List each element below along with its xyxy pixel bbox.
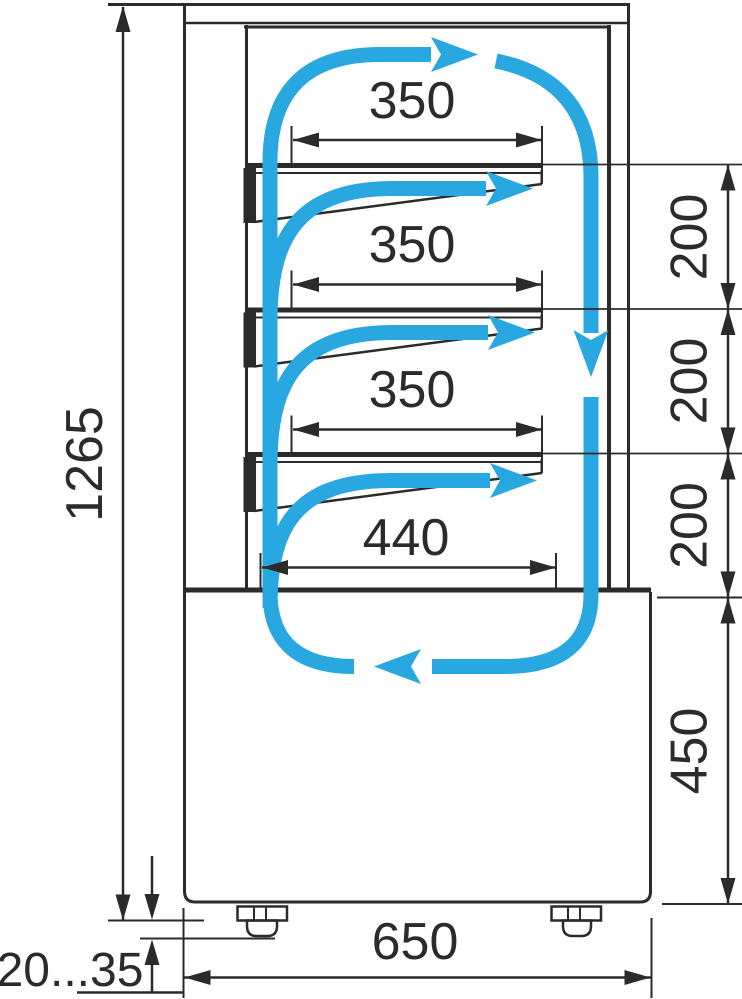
airflow-return-arrow-icon [374, 649, 421, 684]
dim-shelf-depth-2-label: 350 [369, 216, 456, 274]
airflow-shelf-1-arrow-icon [486, 171, 533, 206]
display-case-diagram: 350 350 350 440 [0, 0, 742, 999]
dimension-overall-height: 1265 [56, 6, 204, 921]
left-leg-foot [247, 921, 277, 937]
dim-arrowhead-down-icon [721, 572, 736, 598]
left-leg-bracket [238, 907, 288, 921]
dim-shelf-spacing-3-label: 200 [661, 482, 719, 569]
dim-arrowhead-right-icon [625, 970, 651, 985]
dim-arrowhead-right-icon [516, 422, 542, 437]
dim-arrowhead-left-icon [185, 970, 211, 985]
dim-arrowhead-up-icon [116, 6, 131, 32]
left-leg [238, 907, 288, 937]
airflow-bottom-return [432, 397, 591, 667]
airflow-front-descent [496, 61, 591, 333]
dim-shelf-depth-3-label: 350 [369, 361, 456, 419]
dim-shelf-spacing-1-label: 200 [661, 194, 719, 281]
dim-arrowhead-up-icon [145, 940, 160, 966]
shelf-1-wall-bracket [244, 168, 257, 223]
dim-arrowhead-left-icon [293, 422, 319, 437]
dim-arrowhead-right-icon [530, 560, 556, 575]
dim-arrowhead-down-icon [721, 878, 736, 904]
dim-shelf-depth-1-label: 350 [369, 72, 456, 130]
dim-arrowhead-down-icon [145, 894, 160, 920]
dim-arrowhead-down-icon [116, 895, 131, 921]
dim-arrowhead-up-icon [721, 598, 736, 624]
dimension-foot-range: 20...35 [0, 856, 275, 997]
airflow-down-arrow-icon [574, 330, 609, 377]
right-leg [552, 907, 602, 937]
dim-arrowhead-down-icon [721, 428, 736, 454]
dim-arrowhead-left-icon [293, 133, 319, 148]
shelf-3-wall-bracket [244, 457, 257, 512]
technical-drawing: 350 350 350 440 [0, 0, 742, 999]
dim-overall-depth-label: 650 [372, 913, 459, 971]
dimension-bottom-shelf-depth: 440 [261, 509, 557, 589]
dim-arrowhead-down-icon [721, 283, 736, 309]
dim-foot-range-label: 20...35 [0, 944, 143, 997]
right-leg-foot [563, 921, 591, 937]
airflow-shelf-3-arrow-icon [490, 463, 537, 498]
dim-arrowhead-right-icon [516, 277, 542, 292]
dim-arrowhead-up-icon [721, 309, 736, 335]
dim-bottom-shelf-depth-label: 440 [363, 509, 450, 567]
dim-arrowhead-up-icon [721, 454, 736, 480]
airflow-top-arrow-icon [431, 37, 478, 72]
dim-arrowhead-right-icon [516, 133, 542, 148]
airflow-shelf-2-arrow-icon [488, 315, 535, 350]
right-leg-bracket [552, 907, 602, 921]
dim-base-height-label: 450 [661, 708, 719, 795]
shelf-2-wall-bracket [244, 313, 257, 368]
dim-arrowhead-left-icon [293, 277, 319, 292]
dim-overall-height-label: 1265 [56, 406, 114, 522]
dim-arrowhead-up-icon [721, 165, 736, 191]
dim-shelf-spacing-2-label: 200 [661, 338, 719, 425]
dimension-right-chain: 200 200 200 450 [543, 165, 742, 905]
